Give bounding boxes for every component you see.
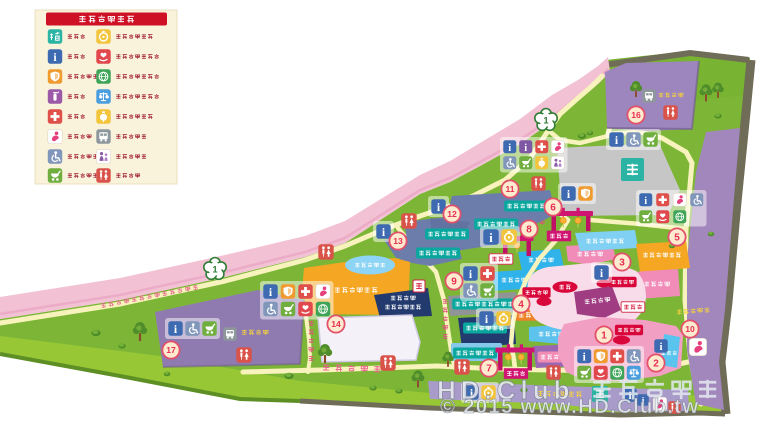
- svg-text:6: 6: [550, 203, 556, 214]
- svg-text:14: 14: [331, 319, 341, 329]
- svg-text:8: 8: [526, 225, 532, 236]
- svg-text:16: 16: [631, 110, 641, 120]
- svg-text:11: 11: [505, 184, 514, 194]
- svg-text:7: 7: [486, 364, 492, 375]
- svg-text:13: 13: [393, 236, 403, 246]
- svg-text:© 2015 www.HD.Club.tw: © 2015 www.HD.Club.tw: [440, 395, 699, 418]
- svg-text:3: 3: [619, 258, 625, 269]
- svg-text:1: 1: [601, 331, 607, 342]
- svg-text:5: 5: [674, 233, 680, 244]
- svg-text:10: 10: [685, 324, 695, 334]
- svg-text:1: 1: [212, 264, 218, 275]
- svg-text:12: 12: [447, 209, 457, 219]
- svg-text:1: 1: [543, 115, 549, 126]
- svg-text:4: 4: [518, 300, 524, 311]
- svg-text:17: 17: [166, 345, 176, 355]
- svg-text:2: 2: [653, 359, 659, 370]
- svg-text:9: 9: [451, 277, 457, 288]
